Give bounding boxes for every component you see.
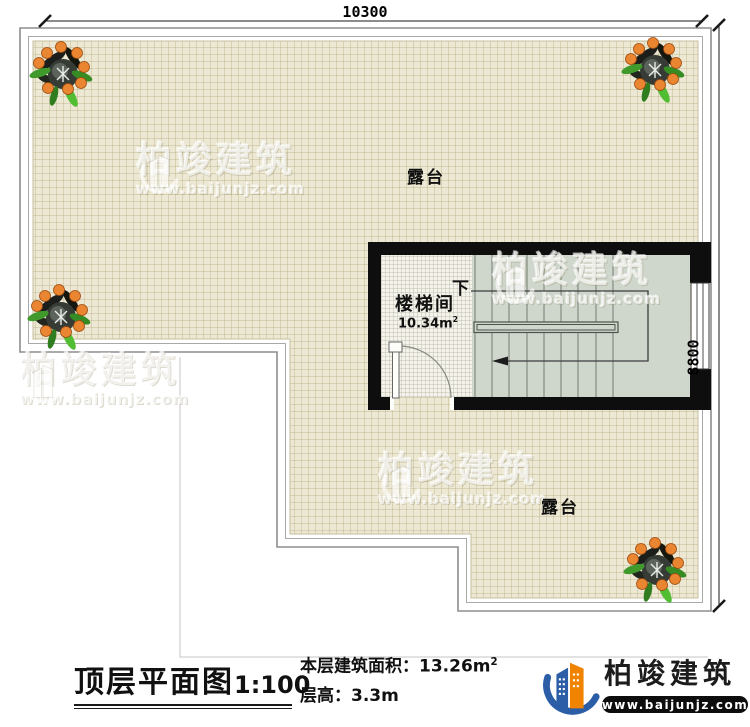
brand-name: 柏竣建筑 xyxy=(604,659,736,690)
stair-handrail xyxy=(474,322,618,333)
dimension-top: 10300 xyxy=(330,5,400,20)
page-title: 顶层平面图 xyxy=(74,666,234,699)
plan-outline-outer xyxy=(20,28,711,611)
plant-top-left xyxy=(28,42,93,109)
stair-treads-lower xyxy=(475,333,613,397)
floor-height-text: 层高：3.3m xyxy=(300,688,399,705)
plant-top-right xyxy=(620,38,685,105)
stair-direction-arrow xyxy=(492,357,508,366)
stair-treads-upper xyxy=(475,255,613,322)
door-swing-arc xyxy=(399,346,451,398)
terrace-label-top: 露台 xyxy=(407,170,445,187)
plan-drawing xyxy=(0,0,750,727)
title-underline xyxy=(74,704,292,706)
floor-plan-page: 柏竣建筑 www.baijunjz.com 柏竣建筑 www.baijunjz.… xyxy=(0,0,750,727)
brand-logo-icon xyxy=(538,657,602,717)
drawing-scale: 1:100 xyxy=(234,673,310,697)
stairwell-area-label: 10.34m2 xyxy=(398,316,458,330)
brand-url-bar: www.baijunjz.com xyxy=(602,696,748,713)
brand-url: www.baijunjz.com xyxy=(602,699,749,711)
plan-outline-inner xyxy=(29,37,703,603)
door-leaf xyxy=(393,345,400,398)
terrace-edge xyxy=(33,41,698,598)
stair-down-label: 下 xyxy=(452,281,469,298)
dimension-lines xyxy=(39,15,725,612)
plant-bottom-right xyxy=(622,538,687,605)
plant-mid-left xyxy=(26,285,91,352)
terrace-label-bottom: 露台 xyxy=(541,500,579,517)
floor-area-text: 本层建筑面积：13.26m2 xyxy=(300,658,498,676)
door xyxy=(389,342,454,410)
stairwell-label: 楼梯间 xyxy=(395,296,455,314)
title-underline xyxy=(74,708,292,709)
dimension-right: 8800 xyxy=(687,328,702,388)
